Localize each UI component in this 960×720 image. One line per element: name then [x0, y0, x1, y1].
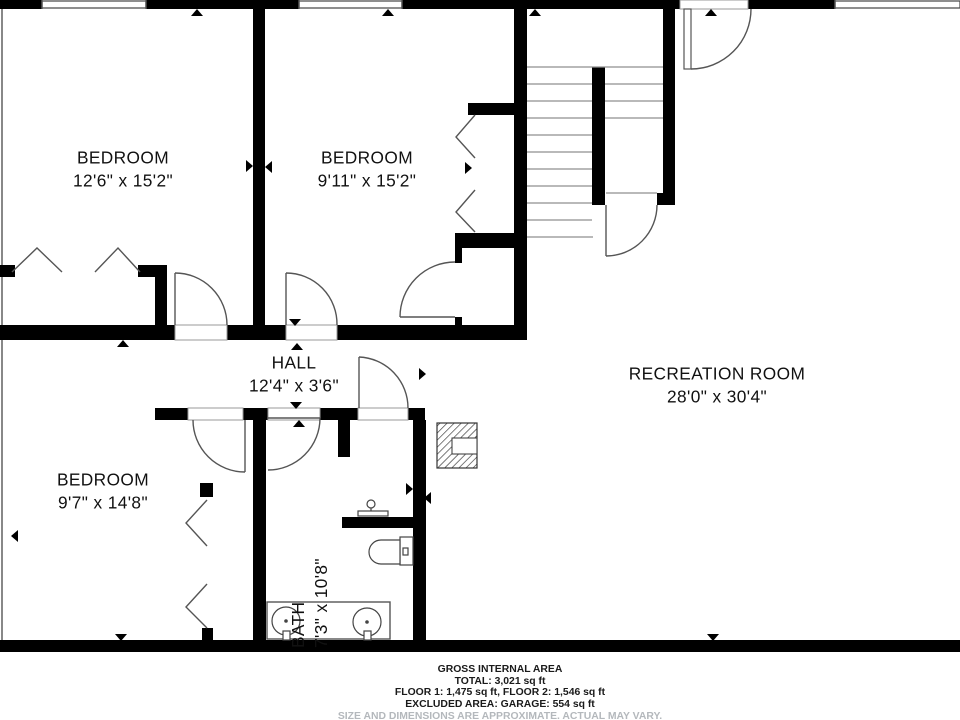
- door-arc: [606, 205, 657, 256]
- door-arc: [400, 262, 455, 317]
- window: [42, 0, 146, 9]
- disclaimer: SIZE AND DIMENSIONS ARE APPROXIMATE. ACT…: [20, 711, 960, 720]
- window: [299, 0, 402, 9]
- door-arc: [268, 418, 320, 470]
- door-arc: [359, 357, 408, 408]
- room-name: BEDROOM: [57, 469, 149, 492]
- toilet-icon: [369, 537, 413, 565]
- room-name: HALL: [249, 352, 339, 375]
- excluded-area: EXCLUDED AREA: GARAGE: 554 sq ft: [20, 699, 960, 711]
- room-dimensions: 28'0" x 30'4": [629, 385, 806, 408]
- room-dimensions: 12'6" x 15'2": [73, 169, 173, 192]
- room-name: BATH: [287, 478, 310, 648]
- room-label-recreation-room: RECREATION ROOM 28'0" x 30'4": [629, 363, 806, 408]
- floor-areas: FLOOR 1: 1,475 sq ft, FLOOR 2: 1,546 sq …: [20, 687, 960, 699]
- door-arc: [193, 420, 245, 472]
- room-name: RECREATION ROOM: [629, 363, 806, 386]
- walls: [0, 0, 960, 652]
- door-arc: [175, 273, 227, 325]
- room-label-bedroom-3: BEDROOM 9'7" x 14'8": [57, 469, 149, 514]
- room-dimensions: 12'4" x 3'6": [249, 374, 339, 397]
- room-name: BEDROOM: [73, 147, 173, 170]
- chimney-icon: [437, 423, 477, 468]
- floorplan-drawing: [0, 0, 960, 720]
- area-summary: GROSS INTERNAL AREA TOTAL: 3,021 sq ft F…: [20, 664, 960, 720]
- room-label-bedroom-2: BEDROOM 9'11" x 15'2": [318, 147, 417, 192]
- window: [835, 0, 960, 9]
- room-dimensions: 7'3" x 10'8": [310, 478, 333, 648]
- door-arc: [286, 273, 337, 325]
- door-arc: [684, 9, 751, 69]
- sink-icon: [358, 500, 388, 516]
- room-label-bath: BATH 7'3" x 10'8": [287, 478, 332, 648]
- floorplan-canvas: BEDROOM 12'6" x 15'2" BEDROOM 9'11" x 15…: [0, 0, 960, 720]
- room-label-bedroom-1: BEDROOM 12'6" x 15'2": [73, 147, 173, 192]
- gross-internal-area-heading: GROSS INTERNAL AREA: [20, 664, 960, 676]
- total-area: TOTAL: 3,021 sq ft: [20, 676, 960, 688]
- room-name: BEDROOM: [318, 147, 417, 170]
- room-dimensions: 9'7" x 14'8": [57, 491, 149, 514]
- room-label-hall: HALL 12'4" x 3'6": [249, 352, 339, 397]
- room-dimensions: 9'11" x 15'2": [318, 169, 417, 192]
